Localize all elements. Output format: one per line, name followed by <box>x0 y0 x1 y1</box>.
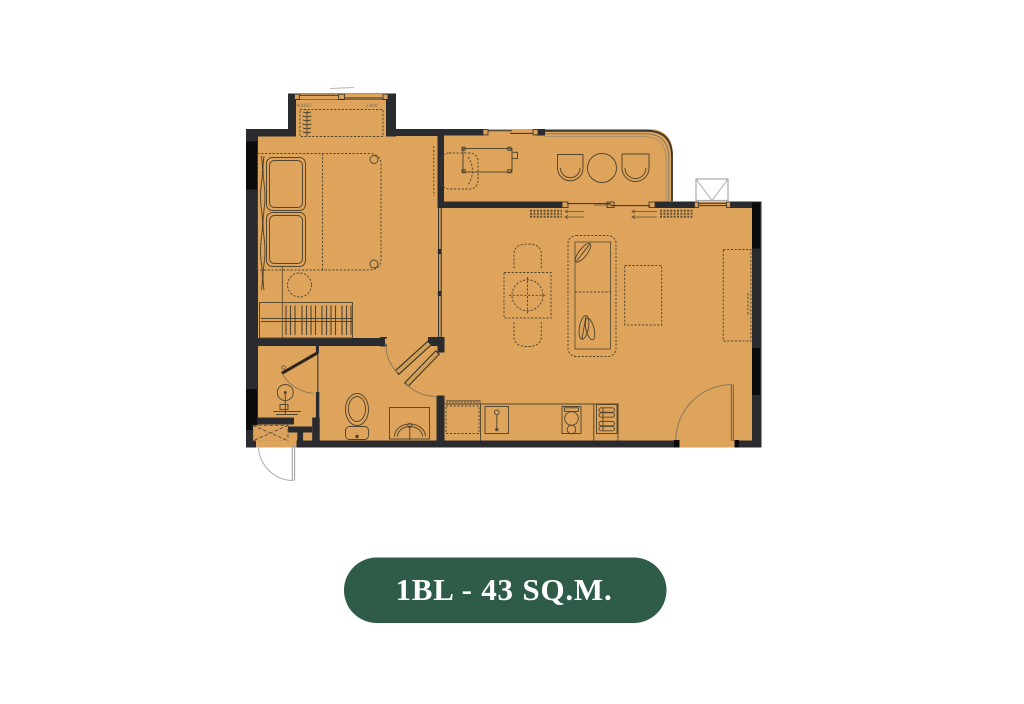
svg-text:WARD.: WARD. <box>296 104 312 109</box>
svg-text:2.800: 2.800 <box>366 104 378 109</box>
svg-text:1BL - 43 SQ.M.: 1BL - 43 SQ.M. <box>395 572 612 607</box>
